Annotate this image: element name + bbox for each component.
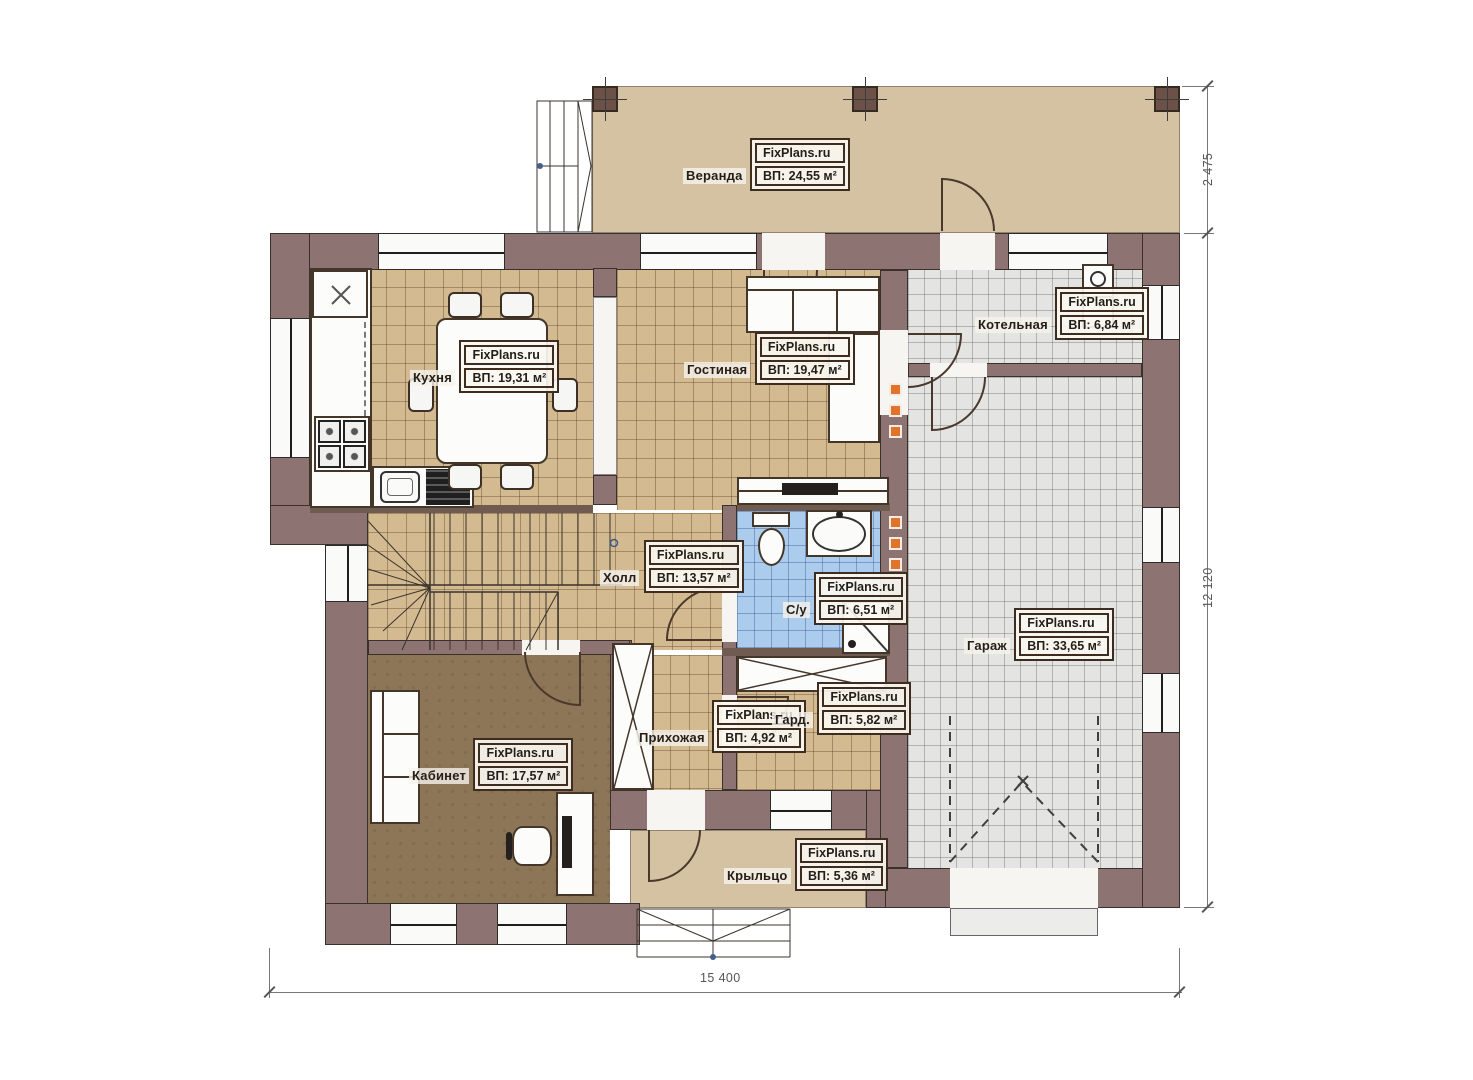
burner — [318, 420, 341, 443]
office-chair — [512, 826, 552, 866]
office-chair-back — [506, 832, 512, 860]
room-name: Прихожая — [636, 730, 708, 746]
room-label-garage: Гараж FixPlans.ru ВП: 33,65 м² — [964, 608, 1114, 661]
room-info-box: FixPlans.ru ВП: 6,51 м² — [814, 572, 907, 625]
brand-watermark: FixPlans.ru — [649, 545, 739, 565]
door-opening — [762, 233, 825, 270]
vent-block — [889, 404, 902, 417]
chair — [448, 464, 482, 490]
room-label-kitchen: Кухня FixPlans.ru ВП: 19,31 м² — [410, 340, 559, 393]
shower-drain — [848, 640, 856, 648]
column — [852, 86, 878, 112]
wall — [593, 475, 617, 505]
vent-block — [889, 425, 902, 438]
door-leaf — [648, 830, 650, 882]
door-opening — [880, 330, 908, 415]
room-label-boiler: Котельная FixPlans.ru ВП: 6,84 м² — [975, 287, 1149, 340]
window — [640, 233, 757, 270]
window — [1142, 673, 1180, 733]
burner — [318, 445, 341, 468]
room-area: ВП: 19,47 м² — [760, 360, 850, 380]
cabinet-cross-icon — [330, 284, 352, 306]
stove — [314, 416, 370, 472]
office-sofa-back — [382, 692, 384, 822]
monitor — [562, 816, 572, 868]
stairs — [368, 513, 622, 650]
floor-plan: Веранда FixPlans.ru ВП: 24,55 м² Кухня F… — [0, 0, 1473, 1080]
room-info-box: FixPlans.ru ВП: 17,57 м² — [473, 738, 573, 791]
room-info-box: FixPlans.ru ВП: 5,82 м² — [817, 682, 910, 735]
window — [325, 545, 368, 602]
washbasin — [812, 516, 866, 552]
door-opening — [647, 790, 705, 830]
sofa-seat-line — [836, 291, 838, 331]
faucet — [836, 511, 843, 518]
room-label-veranda: Веранда FixPlans.ru ВП: 24,55 м² — [683, 138, 850, 191]
veranda-floor — [592, 86, 1180, 233]
tv — [782, 483, 838, 495]
room-label-hall: Холл FixPlans.ru ВП: 13,57 м² — [600, 540, 744, 593]
room-label-porch: Крыльцо FixPlans.ru ВП: 5,36 м² — [724, 838, 888, 891]
toilet-tank — [752, 512, 790, 527]
sofa-seat-line — [792, 291, 794, 331]
door-opening — [722, 585, 737, 642]
window — [378, 233, 505, 270]
office-sofa-cushion — [384, 733, 418, 735]
boiler-dial — [1090, 271, 1106, 287]
room-info-box: FixPlans.ru ВП: 19,31 м² — [459, 340, 559, 393]
room-area: ВП: 5,82 м² — [822, 710, 905, 730]
room-name: Крыльцо — [724, 868, 791, 884]
window — [270, 318, 310, 458]
dimension-right: 12 120 — [1201, 567, 1215, 608]
dimension-line-bottom — [268, 992, 1182, 993]
room-label-bathroom: С/у FixPlans.ru ВП: 6,51 м² — [757, 572, 908, 625]
wall — [325, 903, 640, 945]
dimension-top-right: 2 475 — [1201, 153, 1215, 186]
sofa — [746, 276, 880, 333]
room-area: ВП: 24,55 м² — [755, 166, 845, 186]
door-leaf — [908, 333, 962, 335]
kitchen-sink — [380, 471, 420, 503]
window — [770, 790, 832, 830]
burner — [343, 420, 366, 443]
room-area: ВП: 5,36 м² — [800, 866, 883, 886]
room-name: Гараж — [964, 638, 1010, 654]
room-info-box: FixPlans.ru ВП: 19,47 м² — [755, 332, 855, 385]
dimension-ext-line — [1182, 86, 1214, 87]
window — [1142, 507, 1180, 563]
vent-block — [889, 516, 902, 529]
brand-watermark: FixPlans.ru — [800, 843, 883, 863]
room-area: ВП: 33,65 м² — [1019, 636, 1109, 656]
room-name: Гостиная — [684, 362, 750, 378]
room-name: Гард. — [772, 712, 813, 728]
room-info-box: FixPlans.ru ВП: 5,36 м² — [795, 838, 888, 891]
dimension-ext-line — [1184, 233, 1214, 234]
room-name: Кабинет — [409, 768, 469, 784]
garage-apron — [950, 908, 1098, 936]
door-leaf — [579, 652, 581, 706]
garage-parking-marks — [938, 710, 1110, 872]
wall — [325, 545, 368, 945]
brand-watermark: FixPlans.ru — [464, 345, 554, 365]
room-name: С/у — [783, 602, 810, 618]
vent-block — [889, 537, 902, 550]
chair — [448, 292, 482, 318]
room-info-box: FixPlans.ru ВП: 13,57 м² — [644, 540, 744, 593]
room-label-office: Кабинет FixPlans.ru ВП: 17,57 м² — [395, 738, 573, 791]
dimension-bottom: 15 400 — [700, 971, 741, 985]
room-name: Веранда — [683, 168, 746, 184]
door-opening — [940, 233, 995, 270]
room-area: ВП: 17,57 м² — [478, 766, 568, 786]
room-name: Кухня — [410, 370, 455, 386]
veranda-stairs — [536, 100, 593, 233]
vent-block — [889, 558, 902, 571]
room-area: ВП: 6,84 м² — [1060, 315, 1143, 335]
brand-watermark: FixPlans.ru — [478, 743, 568, 763]
room-label-wardrobe: Гард. FixPlans.ru ВП: 5,82 м² — [772, 682, 911, 735]
chair — [500, 292, 534, 318]
dimension-line-right — [1207, 86, 1208, 908]
brand-watermark: FixPlans.ru — [760, 337, 850, 357]
brand-watermark: FixPlans.ru — [755, 143, 845, 163]
sink-basin — [387, 478, 413, 496]
room-label-living: Гостиная FixPlans.ru ВП: 19,47 м² — [684, 332, 855, 385]
room-info-box: FixPlans.ru ВП: 6,84 м² — [1055, 287, 1148, 340]
porch-steps — [637, 908, 790, 960]
burner — [343, 445, 366, 468]
window — [390, 903, 457, 945]
dimension-ext-line — [1184, 907, 1214, 908]
door-leaf — [941, 178, 943, 231]
brand-watermark: FixPlans.ru — [822, 687, 905, 707]
chair — [500, 464, 534, 490]
room-area: ВП: 13,57 м² — [649, 568, 739, 588]
room-name: Котельная — [975, 317, 1051, 333]
sofa-back-line — [748, 289, 878, 291]
window — [497, 903, 567, 945]
vent-block — [889, 383, 902, 396]
room-name: Холл — [600, 570, 639, 586]
door-leaf — [931, 377, 933, 431]
room-area: ВП: 19,31 м² — [464, 368, 554, 388]
brand-watermark: FixPlans.ru — [1060, 292, 1143, 312]
garage-door-opening — [950, 868, 1098, 908]
room-area: ВП: 6,51 м² — [819, 600, 902, 620]
brand-watermark: FixPlans.ru — [819, 577, 902, 597]
counter-dashed-line — [364, 322, 366, 416]
column — [592, 86, 618, 112]
brand-watermark: FixPlans.ru — [1019, 613, 1109, 633]
room-info-box: FixPlans.ru ВП: 24,55 м² — [750, 138, 850, 191]
door-leaf — [666, 639, 722, 641]
wall — [593, 268, 617, 297]
column — [1154, 86, 1180, 112]
room-info-box: FixPlans.ru ВП: 33,65 м² — [1014, 608, 1114, 661]
upper-cabinet — [312, 270, 368, 318]
kitchen-living-portal — [593, 297, 617, 475]
